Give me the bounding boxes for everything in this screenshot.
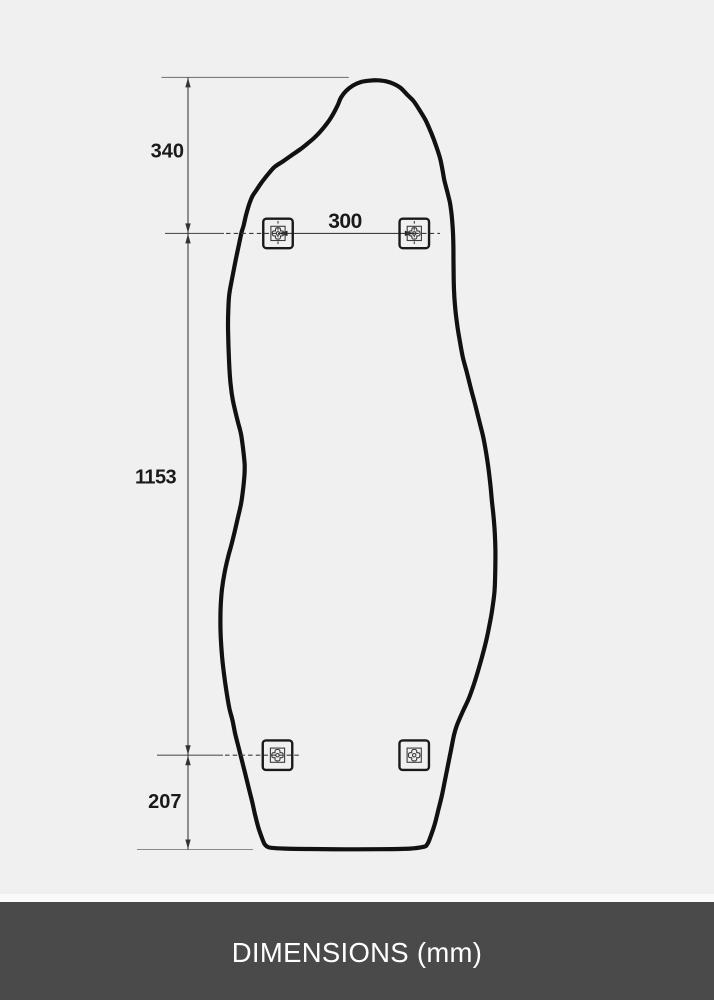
svg-text:300: 300 [328, 210, 362, 233]
svg-text:1153: 1153 [135, 466, 176, 488]
svg-text:207: 207 [148, 791, 181, 813]
svg-text:340: 340 [151, 140, 184, 162]
